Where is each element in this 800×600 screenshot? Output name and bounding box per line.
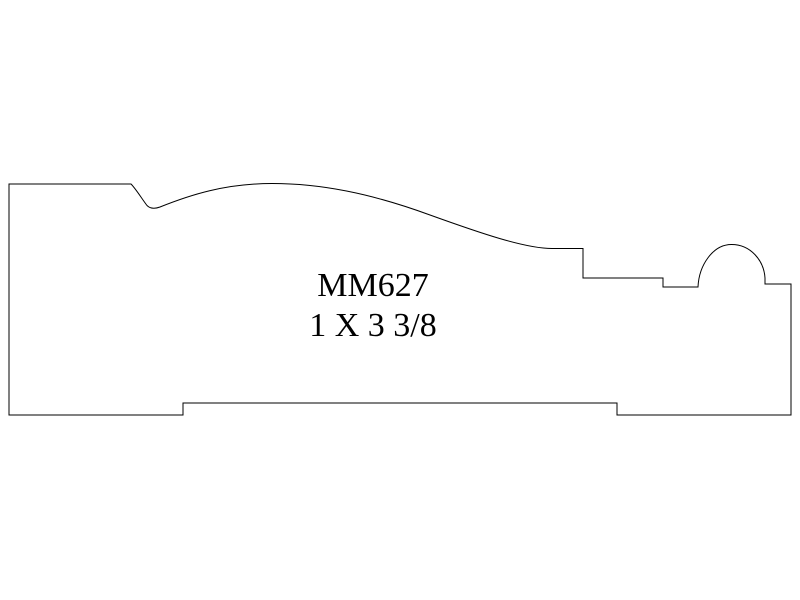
part-number-label: MM627: [233, 266, 513, 306]
size-label: 1 X 3 3/8: [233, 306, 513, 346]
profile-labels: MM627 1 X 3 3/8: [233, 266, 513, 346]
drawing-canvas: MM627 1 X 3 3/8: [0, 0, 800, 600]
